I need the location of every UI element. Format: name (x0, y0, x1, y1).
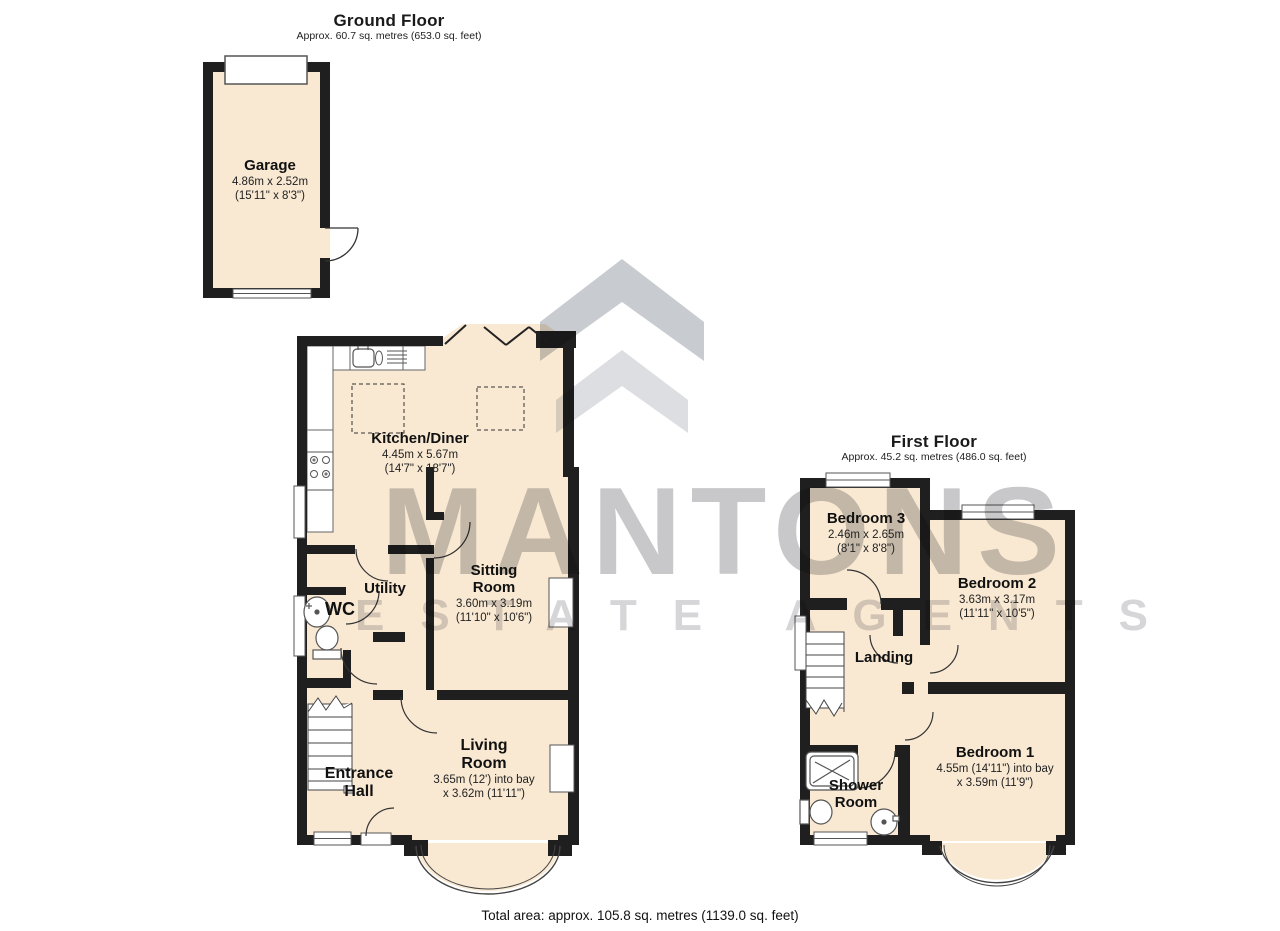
room-name: Bedroom 2 (958, 576, 1036, 593)
room-dims-metric: 3.65m (12') into bay (433, 773, 534, 787)
room-name: Entrance Hall (313, 765, 405, 801)
garage-window (233, 289, 311, 298)
room-label-entrance-hall: Entrance Hall (313, 765, 405, 801)
room-name: Kitchen/Diner (371, 431, 469, 448)
floorplan-page: { "footer": { "total_area": "Total area:… (0, 0, 1280, 931)
room-dims-metric: 3.60m x 3.19m (456, 597, 532, 611)
room-dims-imperial: x 3.62m (11'11") (433, 787, 534, 801)
room-dims-imperial: (14'7" x 18'7") (371, 462, 469, 476)
room-dims-imperial: (15'11" x 8'3") (232, 189, 308, 203)
room-name: Shower Room (815, 778, 897, 812)
room-name: Garage (232, 158, 308, 175)
room-name: Landing (855, 650, 913, 667)
room-name: WC (325, 599, 355, 619)
room-label-utility: Utility (364, 581, 406, 598)
room-dims-imperial: (11'10" x 10'6") (456, 611, 532, 625)
room-dims-imperial: (11'11" x 10'5") (958, 607, 1036, 621)
garage-door (225, 56, 307, 84)
room-label-bedroom-3: Bedroom 3 2.46m x 2.65m (8'1" x 8'8") (827, 511, 905, 556)
room-dims-metric: 4.55m (14'11") into bay (936, 762, 1053, 776)
room-label-wc: WC (325, 599, 355, 619)
room-label-kitchen-diner: Kitchen/Diner 4.45m x 5.67m (14'7" x 18'… (371, 431, 469, 476)
room-dims-imperial: (8'1" x 8'8") (827, 542, 905, 556)
room-name: Living Room (448, 737, 520, 773)
hob-icon (307, 452, 333, 490)
room-dims-metric: 3.63m x 3.17m (958, 593, 1036, 607)
room-name: Bedroom 3 (827, 511, 905, 528)
room-label-living-room: Living Room 3.65m (12') into bay x 3.62m… (433, 737, 534, 801)
room-dims-metric: 4.45m x 5.67m (371, 448, 469, 462)
room-label-bedroom-2: Bedroom 2 3.63m x 3.17m (11'11" x 10'5") (958, 576, 1036, 621)
room-label-bedroom-1: Bedroom 1 4.55m (14'11") into bay x 3.59… (936, 745, 1053, 790)
room-name: Utility (364, 581, 406, 598)
room-name: Bedroom 1 (936, 745, 1053, 762)
floorplan-drawing (0, 0, 1280, 931)
room-label-shower-room: Shower Room (815, 778, 897, 812)
stairs-icon (806, 632, 844, 716)
room-label-garage: Garage 4.86m x 2.52m (15'11" x 8'3") (232, 158, 308, 203)
room-label-sitting-room: Sitting Room 3.60m x 3.19m (11'10" x 10'… (456, 563, 532, 625)
room-dims-imperial: x 3.59m (11'9") (936, 776, 1053, 790)
room-label-landing: Landing (855, 650, 913, 667)
room-name: Sitting Room (458, 563, 530, 597)
room-dims-metric: 4.86m x 2.52m (232, 175, 308, 189)
room-dims-metric: 2.46m x 2.65m (827, 528, 905, 542)
